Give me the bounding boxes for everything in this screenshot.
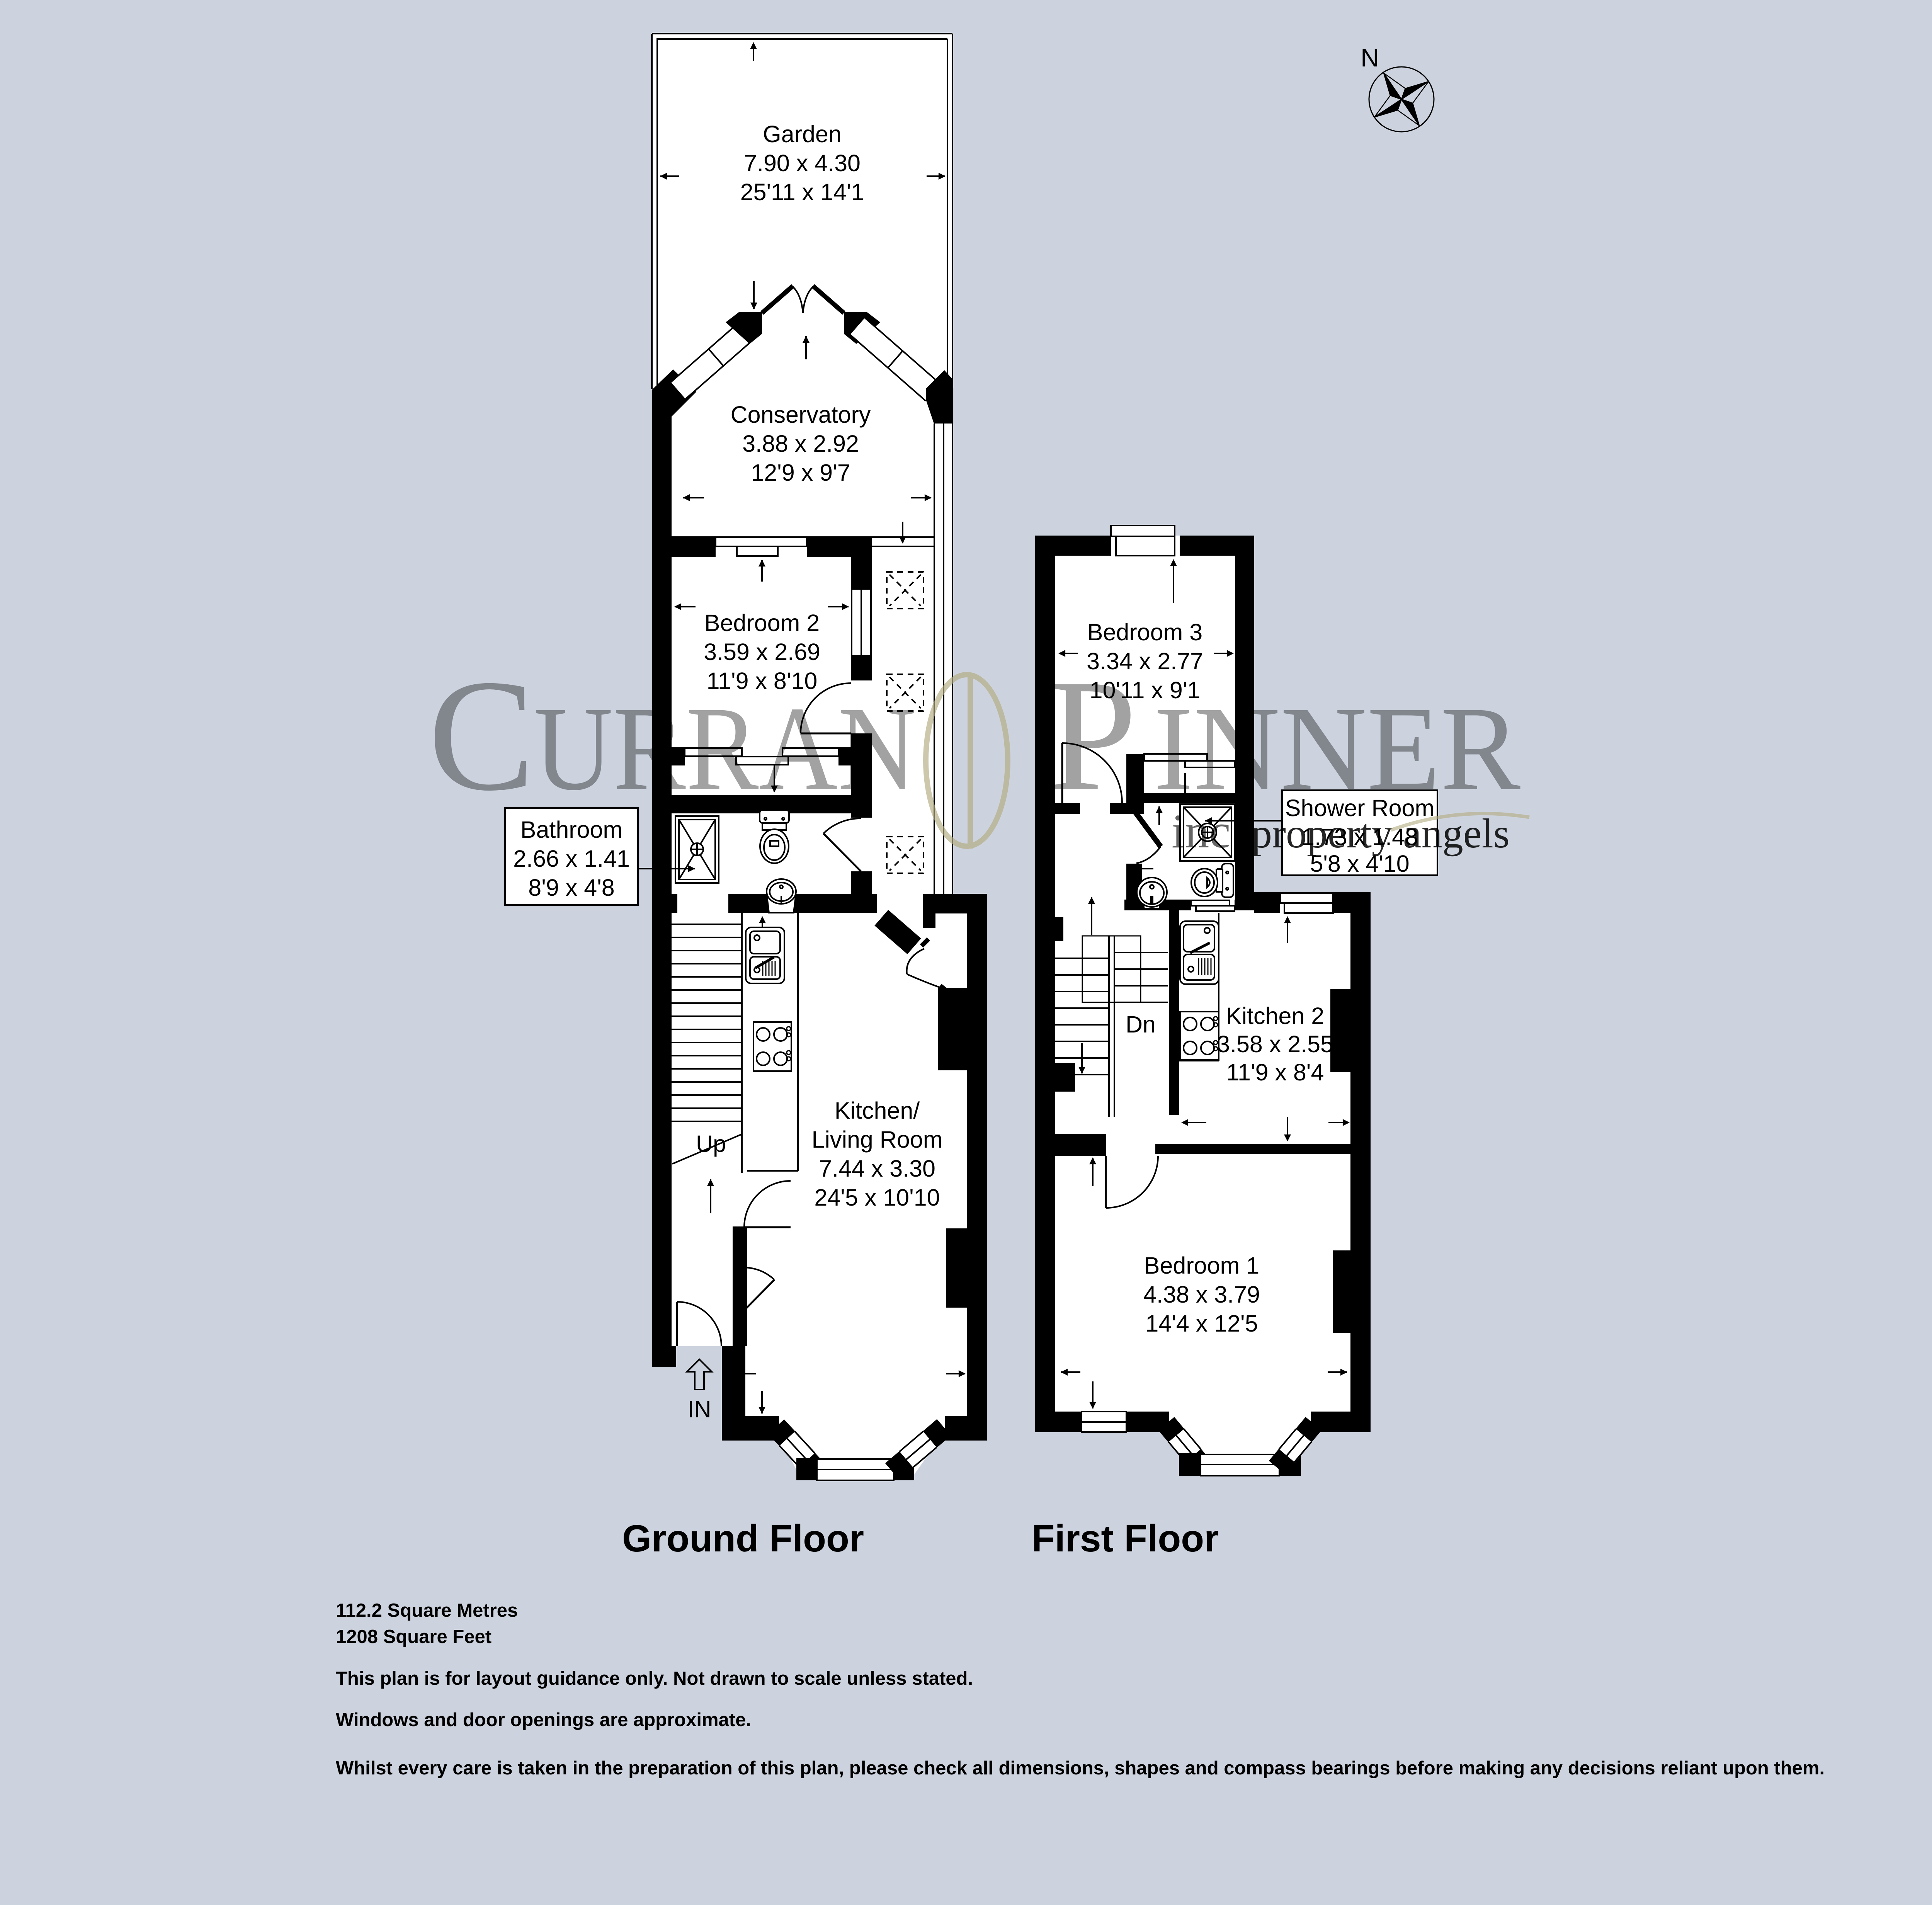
svg-text:14'4 x 12'5: 14'4 x 12'5: [1145, 1310, 1258, 1337]
svg-text:Kitchen 2: Kitchen 2: [1226, 1003, 1324, 1029]
svg-text:IN: IN: [688, 1396, 711, 1422]
svg-text:Kitchen/: Kitchen/: [835, 1097, 920, 1124]
svg-text:URRAN: URRAN: [534, 682, 917, 815]
svg-text:24'5 x 10'10: 24'5 x 10'10: [814, 1184, 940, 1211]
svg-text:3.59 x 2.69: 3.59 x 2.69: [704, 639, 820, 665]
svg-text:12'9 x 9'7: 12'9 x 9'7: [751, 459, 850, 486]
svg-text:112.2 Square Metres: 112.2 Square Metres: [336, 1600, 518, 1621]
svg-text:7.44 x 3.30: 7.44 x 3.30: [819, 1155, 935, 1182]
svg-text:First Floor: First Floor: [1032, 1517, 1219, 1560]
svg-text:This plan is for layout guidan: This plan is for layout guidance only. N…: [336, 1668, 973, 1689]
svg-text:INNER: INNER: [1153, 682, 1521, 815]
svg-text:25'11 x 14'1: 25'11 x 14'1: [740, 179, 864, 205]
svg-text:Up: Up: [696, 1131, 726, 1157]
svg-text:Ground Floor: Ground Floor: [622, 1517, 864, 1560]
svg-text:Living Room: Living Room: [811, 1126, 942, 1153]
svg-text:property angels: property angels: [1251, 811, 1510, 857]
svg-text:2.66 x 1.41: 2.66 x 1.41: [513, 845, 630, 872]
svg-text:N: N: [1361, 43, 1379, 72]
svg-text:P: P: [1048, 646, 1137, 824]
svg-text:Windows and door openings are: Windows and door openings are approximat…: [336, 1709, 751, 1730]
svg-text:Bedroom 1: Bedroom 1: [1144, 1252, 1259, 1279]
svg-text:11'9 x 8'4: 11'9 x 8'4: [1226, 1059, 1324, 1085]
svg-text:Bedroom 3: Bedroom 3: [1087, 619, 1202, 645]
svg-text:7.90 x 4.30: 7.90 x 4.30: [744, 150, 861, 176]
svg-text:Dn: Dn: [1126, 1011, 1156, 1038]
svg-text:3.58 x 2.55: 3.58 x 2.55: [1217, 1031, 1333, 1057]
svg-text:Garden: Garden: [763, 121, 841, 147]
svg-text:inc.: inc.: [1172, 805, 1243, 858]
svg-text:Bedroom 2: Bedroom 2: [704, 610, 820, 636]
svg-text:Bathroom: Bathroom: [520, 816, 622, 843]
svg-text:8'9 x 4'8: 8'9 x 4'8: [528, 874, 614, 901]
svg-text:Whilst every care is taken in: Whilst every care is taken in the prepar…: [336, 1758, 1825, 1779]
svg-text:Conservatory: Conservatory: [731, 401, 871, 428]
svg-text:C: C: [428, 646, 535, 824]
svg-text:3.88 x 2.92: 3.88 x 2.92: [742, 430, 859, 457]
svg-text:1208 Square Feet: 1208 Square Feet: [336, 1626, 492, 1647]
svg-text:4.38 x 3.79: 4.38 x 3.79: [1143, 1281, 1260, 1308]
